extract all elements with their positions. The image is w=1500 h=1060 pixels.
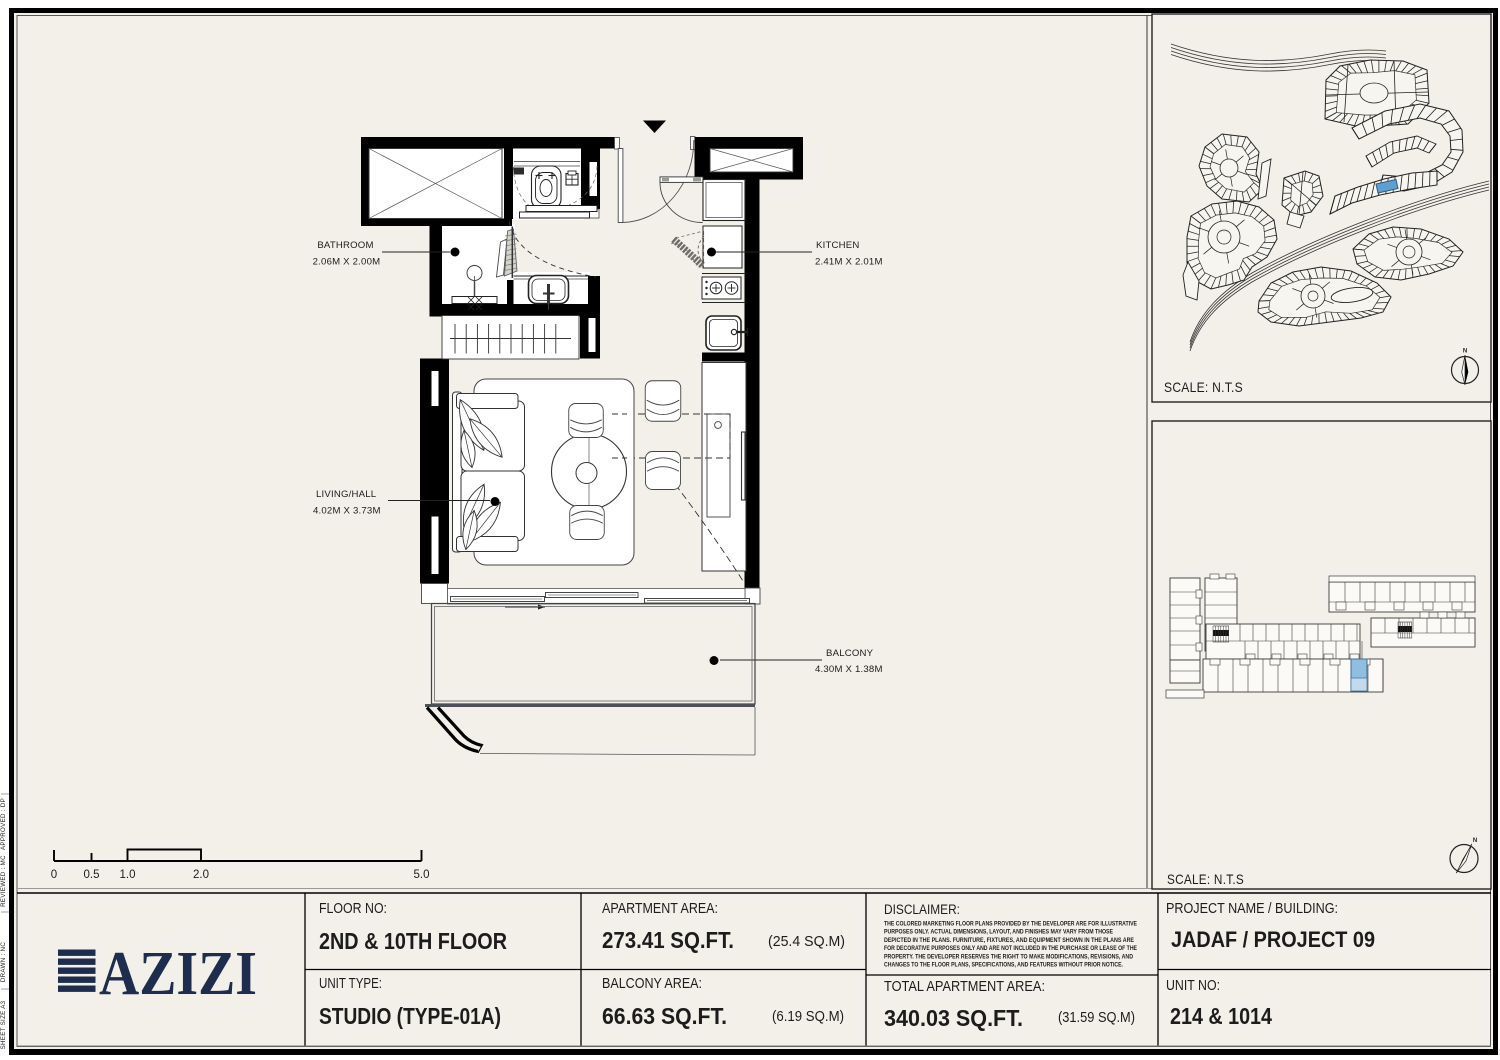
svg-text:SCALE: N.T.S: SCALE: N.T.S	[1167, 871, 1244, 887]
svg-text:BALCONY AREA:: BALCONY AREA:	[602, 976, 702, 992]
svg-text:340.03 SQ.FT.: 340.03 SQ.FT.	[884, 1005, 1023, 1031]
svg-text:2ND & 10TH FLOOR: 2ND & 10TH FLOOR	[319, 928, 507, 954]
svg-text:UNIT TYPE:: UNIT TYPE:	[319, 976, 382, 992]
svg-text:THE COLORED MARKETING FLOOR PL: THE COLORED MARKETING FLOOR PLANS PROVID…	[884, 921, 1137, 928]
svg-text:214 & 1014: 214 & 1014	[1170, 1003, 1272, 1029]
svg-text:UNIT NO:: UNIT NO:	[1166, 978, 1220, 994]
svg-text:4.02M X 3.73M: 4.02M X 3.73M	[313, 506, 381, 517]
svg-text:(6.19 SQ.M): (6.19 SQ.M)	[772, 1009, 844, 1025]
svg-text:N: N	[1463, 349, 1467, 355]
svg-text:DRAWN : NC: DRAWN : NC	[0, 942, 7, 982]
svg-text:FOR DECORATIVE PURPOSES ONLY A: FOR DECORATIVE PURPOSES ONLY AND ARE NOT…	[884, 945, 1137, 952]
svg-text:2.41M X 2.01M: 2.41M X 2.01M	[815, 257, 883, 268]
svg-text:REVIEWED : MC: REVIEWED : MC	[0, 855, 7, 907]
svg-text:APPROVED : DP: APPROVED : DP	[0, 798, 7, 850]
svg-text:APARTMENT AREA:: APARTMENT AREA:	[602, 901, 718, 917]
svg-text:PURPOSES ONLY. ACTUAL DIMENSIO: PURPOSES ONLY. ACTUAL DIMENSIONS, LAYOUT…	[884, 929, 1113, 936]
svg-text:DISCLAIMER:: DISCLAIMER:	[884, 902, 960, 917]
svg-text:N: N	[1473, 838, 1477, 844]
svg-text:FLOOR NO:: FLOOR NO:	[319, 901, 387, 917]
svg-text:2.06M X 2.00M: 2.06M X 2.00M	[313, 257, 381, 268]
svg-text:0: 0	[51, 869, 57, 881]
svg-text:PROPERTY. THE DEVELOPER RESERV: PROPERTY. THE DEVELOPER RESERVES THE RIG…	[884, 953, 1133, 960]
svg-text:SHEET SIZE A3: SHEET SIZE A3	[0, 1000, 7, 1049]
svg-text:TOTAL APARTMENT AREA:: TOTAL APARTMENT AREA:	[884, 979, 1045, 995]
svg-text:BATHROOM: BATHROOM	[317, 240, 373, 251]
svg-text:66.63 SQ.FT.: 66.63 SQ.FT.	[602, 1003, 727, 1029]
svg-text:0.5: 0.5	[84, 869, 100, 881]
svg-text:STUDIO (TYPE-01A): STUDIO (TYPE-01A)	[319, 1003, 501, 1029]
svg-text:(25.4 SQ.M): (25.4 SQ.M)	[768, 934, 845, 950]
svg-text:DEPICTED IN THE PLANS. FURNITU: DEPICTED IN THE PLANS. FURNITURE, FIXTUR…	[884, 937, 1134, 944]
svg-text:4.30M X 1.38M: 4.30M X 1.38M	[815, 664, 883, 675]
svg-text:KITCHEN: KITCHEN	[816, 240, 860, 251]
svg-text:273.41 SQ.FT.: 273.41 SQ.FT.	[602, 927, 734, 953]
svg-text:AZIZI: AZIZI	[99, 940, 257, 1008]
svg-text:PROJECT NAME / BUILDING:: PROJECT NAME / BUILDING:	[1166, 901, 1338, 917]
svg-text:CHANGES TO THE FLOOR PLANS, SP: CHANGES TO THE FLOOR PLANS, SPECIFICATIO…	[884, 962, 1123, 969]
svg-text:1.0: 1.0	[120, 869, 136, 881]
svg-text:SCALE: N.T.S: SCALE: N.T.S	[1164, 379, 1243, 395]
svg-text:(31.59 SQ.M): (31.59 SQ.M)	[1058, 1010, 1135, 1026]
svg-text:5.0: 5.0	[414, 869, 430, 881]
svg-text:BALCONY: BALCONY	[826, 648, 874, 659]
svg-text:LIVING/HALL: LIVING/HALL	[316, 489, 377, 500]
svg-text:JADAF / PROJECT 09: JADAF / PROJECT 09	[1171, 927, 1375, 952]
svg-text:2.0: 2.0	[193, 869, 209, 881]
